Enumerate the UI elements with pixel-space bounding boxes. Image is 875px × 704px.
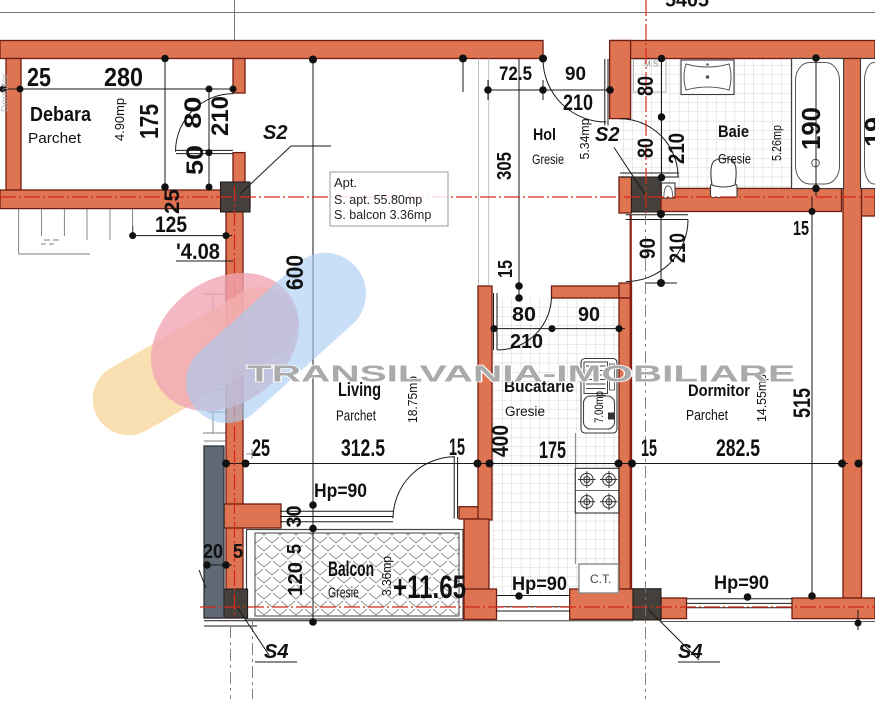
svg-text:175: 175 <box>539 437 566 464</box>
svg-text:210: 210 <box>207 96 234 136</box>
svg-text:Debara: Debara <box>30 104 92 126</box>
svg-text:80: 80 <box>512 304 536 326</box>
svg-text:400: 400 <box>487 425 513 457</box>
svg-text:Gresie: Gresie <box>505 404 545 419</box>
svg-text:Hp=90: Hp=90 <box>314 481 367 502</box>
svg-text:90: 90 <box>565 64 586 85</box>
svg-text:S2: S2 <box>263 122 287 144</box>
svg-text:80: 80 <box>180 97 207 129</box>
svg-text:15: 15 <box>793 218 809 240</box>
svg-text:5405: 5405 <box>665 0 709 12</box>
svg-text:Dormitor: Dormitor <box>0 73 11 112</box>
svg-text:5: 5 <box>233 541 243 563</box>
svg-text:Parchet: Parchet <box>28 131 81 147</box>
svg-text:Apt.: Apt. <box>334 175 357 190</box>
svg-text:TRANSILVANIA-IMOBILIARE: TRANSILVANIA-IMOBILIARE <box>247 361 795 387</box>
svg-text:210: 210 <box>510 331 543 353</box>
svg-text:Hp=90: Hp=90 <box>512 574 567 595</box>
svg-text:80: 80 <box>633 138 658 158</box>
svg-text:5.34mp: 5.34mp <box>578 118 592 159</box>
svg-text:175: 175 <box>134 104 164 139</box>
svg-text:90: 90 <box>578 304 600 326</box>
svg-text:515: 515 <box>789 388 816 418</box>
svg-text:S4: S4 <box>678 641 702 663</box>
svg-text:50: 50 <box>182 145 209 175</box>
svg-text:305: 305 <box>494 152 516 180</box>
svg-text:S. balcon 3.36mp: S. balcon 3.36mp <box>334 208 431 222</box>
svg-text:25: 25 <box>161 189 184 214</box>
svg-text:C.T.: C.T. <box>590 572 611 586</box>
svg-text:125: 125 <box>155 212 187 237</box>
svg-text:210: 210 <box>664 133 689 164</box>
svg-text:Baie: Baie <box>718 122 749 141</box>
svg-text:4.90mp: 4.90mp <box>113 98 127 141</box>
svg-text:Gresie: Gresie <box>532 152 564 167</box>
svg-text:Balcon: Balcon <box>328 558 374 581</box>
svg-text:25: 25 <box>252 435 270 462</box>
svg-text:'4.08: '4.08 <box>176 239 220 264</box>
svg-text:210: 210 <box>563 90 593 115</box>
svg-text:15: 15 <box>495 260 517 278</box>
svg-text:19: 19 <box>859 117 875 147</box>
svg-text:15: 15 <box>449 434 465 461</box>
svg-text:Gresie: Gresie <box>328 586 359 602</box>
svg-text:282.5: 282.5 <box>716 435 760 462</box>
svg-text:120: 120 <box>285 562 307 596</box>
svg-text:80: 80 <box>633 76 658 96</box>
svg-text:S. apt. 55.80mp: S. apt. 55.80mp <box>334 193 422 207</box>
svg-text:Parchet: Parchet <box>686 408 728 424</box>
svg-text:15: 15 <box>641 435 657 462</box>
svg-text:Parchet: Parchet <box>336 409 376 425</box>
svg-text:Hol: Hol <box>533 125 556 144</box>
svg-text:280: 280 <box>104 62 143 92</box>
svg-text:20: 20 <box>203 541 223 563</box>
svg-text:Hp=90: Hp=90 <box>714 573 769 594</box>
svg-text:5.26mp: 5.26mp <box>770 125 784 161</box>
svg-text:600: 600 <box>282 255 309 290</box>
svg-text:72.5: 72.5 <box>499 64 532 85</box>
svg-text:190: 190 <box>796 107 826 150</box>
svg-text:+11.65: +11.65 <box>393 569 466 605</box>
svg-text:210: 210 <box>665 233 690 263</box>
svg-text:3.36mp: 3.36mp <box>380 556 394 596</box>
svg-text:S2: S2 <box>595 124 619 146</box>
svg-text:90: 90 <box>635 238 660 259</box>
svg-text:30: 30 <box>283 506 306 528</box>
svg-text:S4: S4 <box>264 641 288 663</box>
svg-text:7.00mp: 7.00mp <box>592 391 606 423</box>
svg-text:25: 25 <box>27 62 51 92</box>
svg-text:5: 5 <box>284 544 306 554</box>
svg-text:312.5: 312.5 <box>341 435 385 462</box>
svg-text:Gresie: Gresie <box>718 152 751 167</box>
